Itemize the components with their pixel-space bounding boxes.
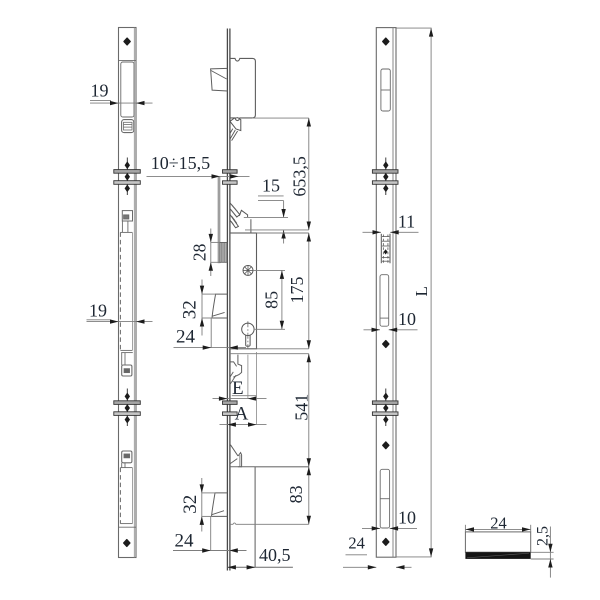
svg-text:24: 24 [175, 530, 195, 551]
svg-text:175: 175 [287, 277, 307, 304]
svg-text:19: 19 [89, 301, 107, 321]
svg-text:32: 32 [180, 495, 201, 514]
svg-text:19: 19 [91, 81, 109, 101]
svg-text:10: 10 [398, 508, 416, 528]
svg-text:653,5: 653,5 [289, 156, 309, 197]
svg-text:A: A [235, 404, 249, 425]
svg-text:24: 24 [490, 513, 507, 532]
svg-text:L: L [412, 286, 431, 296]
svg-text:10: 10 [398, 309, 416, 329]
svg-text:10÷15,5: 10÷15,5 [151, 153, 210, 173]
svg-text:11: 11 [398, 212, 415, 232]
svg-text:541: 541 [292, 394, 312, 421]
svg-text:40,5: 40,5 [259, 545, 291, 565]
svg-text:28: 28 [189, 243, 209, 261]
svg-text:15: 15 [262, 175, 280, 195]
svg-text:83: 83 [286, 485, 306, 503]
svg-text:24: 24 [176, 326, 196, 347]
svg-text:32: 32 [180, 300, 201, 319]
svg-text:24: 24 [348, 533, 365, 552]
svg-text:2,5: 2,5 [535, 526, 552, 546]
svg-text:85: 85 [261, 291, 281, 309]
